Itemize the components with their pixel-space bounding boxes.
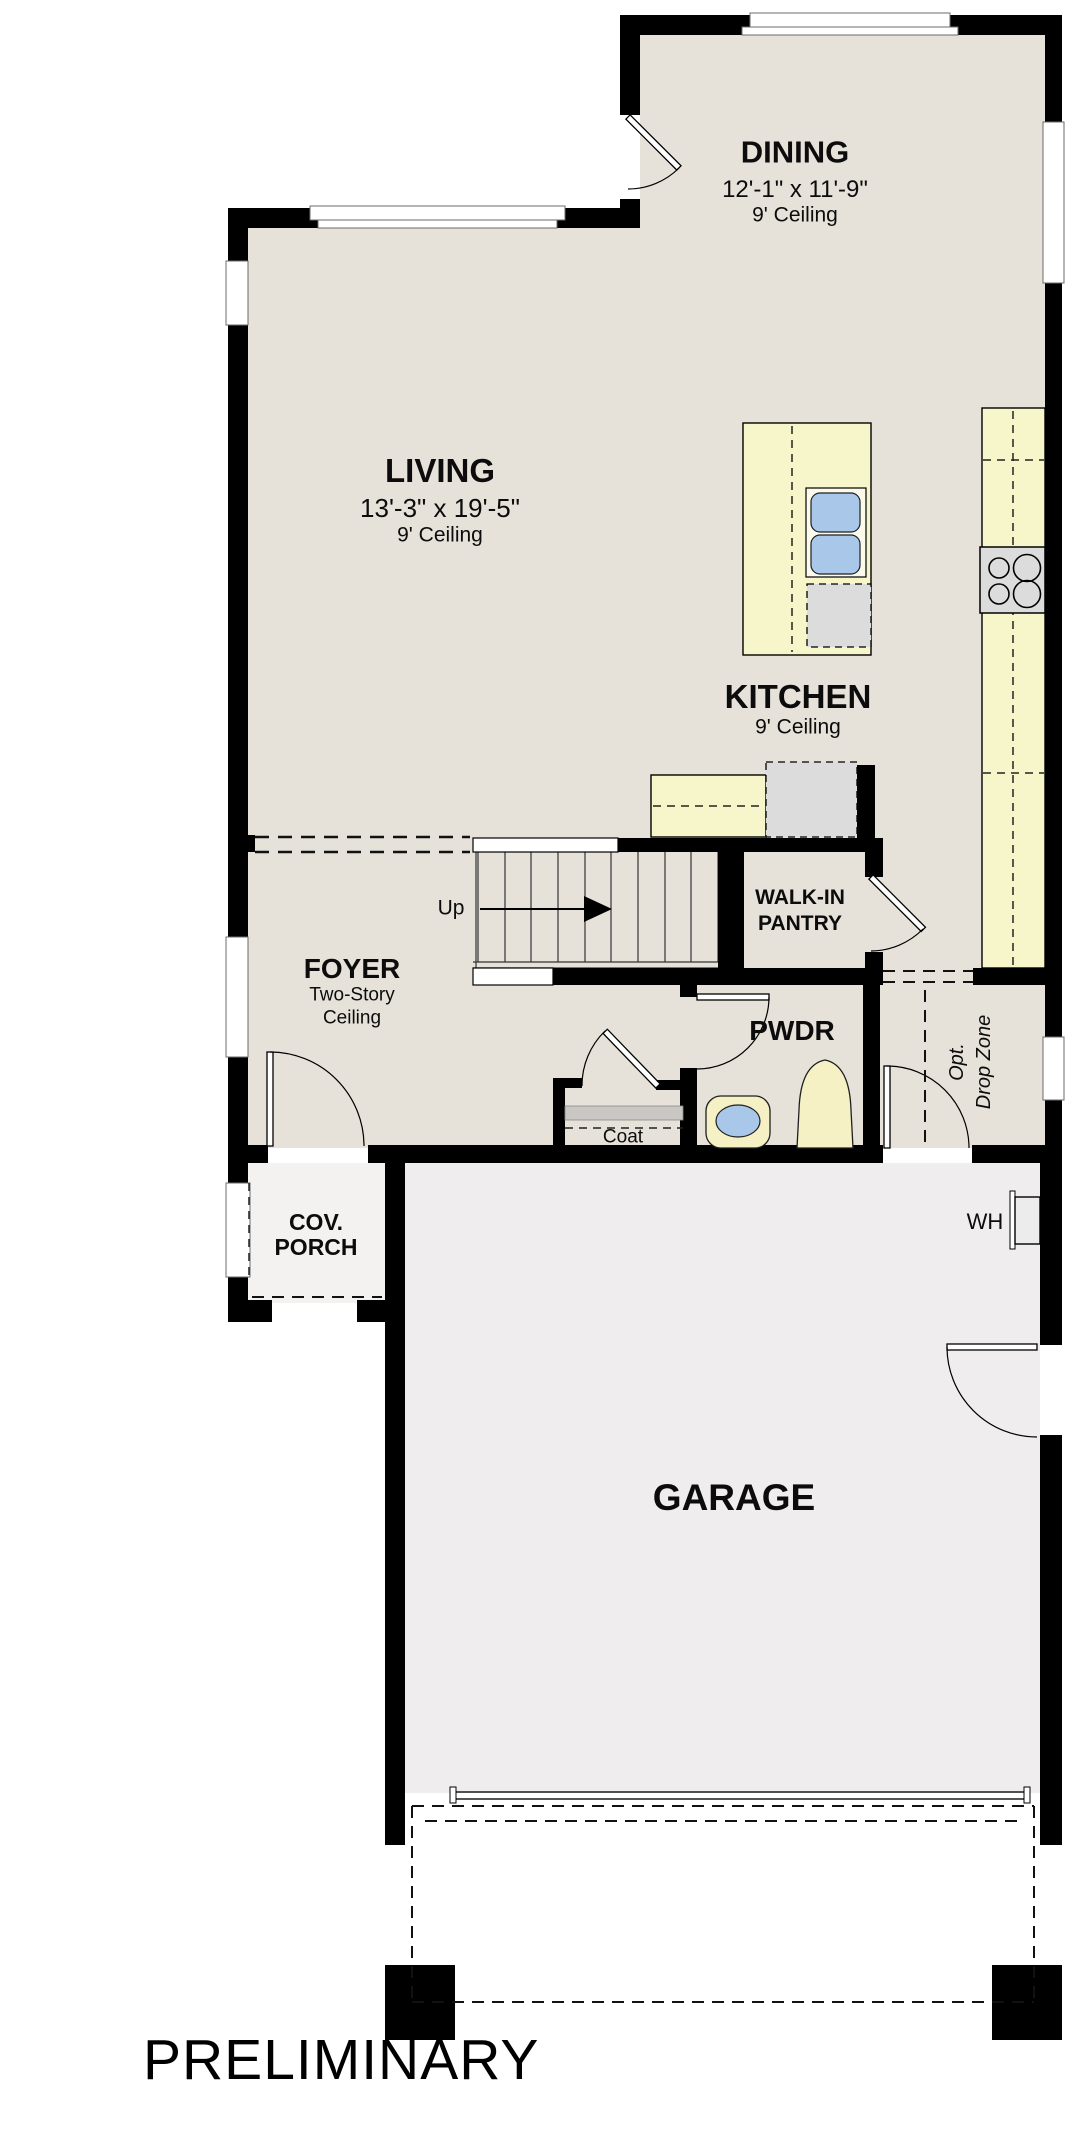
living-name: LIVING: [385, 453, 495, 489]
floors: [248, 35, 1045, 1793]
preliminary-watermark: PRELIMINARY: [143, 2032, 539, 2089]
dining-name: DINING: [741, 135, 850, 168]
living-dimensions: 13'-3" x 19'-5": [360, 494, 520, 522]
dishwasher: [807, 584, 871, 647]
garage-left-opening: [385, 1845, 405, 1965]
pantry-label: WALK-IN PANTRY: [755, 885, 845, 938]
dining-top-window: [742, 13, 958, 35]
driveway-apron: [412, 1806, 1034, 2002]
living-ceiling: 9' Ceiling: [397, 525, 483, 548]
living-left-window: [226, 261, 248, 325]
kitchen-island: [743, 423, 871, 655]
island-sink: [806, 488, 866, 577]
dining-dimensions: 12'-1" x 11'-9": [722, 177, 868, 203]
refrigerator: [766, 762, 857, 837]
stairs-up-label: Up: [438, 898, 465, 921]
room-label-dining: DINING: [741, 135, 850, 168]
water-heater-label: WH: [967, 1210, 1004, 1234]
kitchen-ceiling: 9' Ceiling: [755, 717, 841, 740]
dining-right-window: [1043, 122, 1064, 283]
foyer-left-window: [226, 937, 248, 1057]
living-top-window: [310, 206, 565, 228]
water-heater: [1010, 1191, 1040, 1249]
foyer-name: FOYER: [304, 954, 400, 984]
coat-label: Coat: [603, 1128, 643, 1149]
garage-name: GARAGE: [653, 1478, 815, 1518]
toilet: [706, 1096, 770, 1148]
drop-zone-window: [1043, 1037, 1064, 1100]
cooktop: [980, 547, 1045, 613]
foyer-note-1: Two-Story: [309, 985, 395, 1008]
dining-ceiling: 9' Ceiling: [752, 205, 838, 228]
foyer-note-2: Ceiling: [323, 1008, 381, 1031]
floor-plan: DINING 12'-1" x 11'-9" 9' Ceiling LIVING…: [0, 0, 1080, 2147]
garage-right-opening: [1040, 1845, 1062, 1965]
porch-label: COV. PORCH: [274, 1210, 357, 1260]
drop-zone-label: Opt. Drop Zone: [944, 1015, 998, 1110]
floor-plan-drawing: [0, 0, 1080, 2147]
powder-name: PWDR: [749, 1016, 835, 1046]
porch-left-opening: [226, 1183, 250, 1277]
kitchen-right-counter: [980, 408, 1045, 968]
kitchen-name: KITCHEN: [725, 679, 872, 715]
